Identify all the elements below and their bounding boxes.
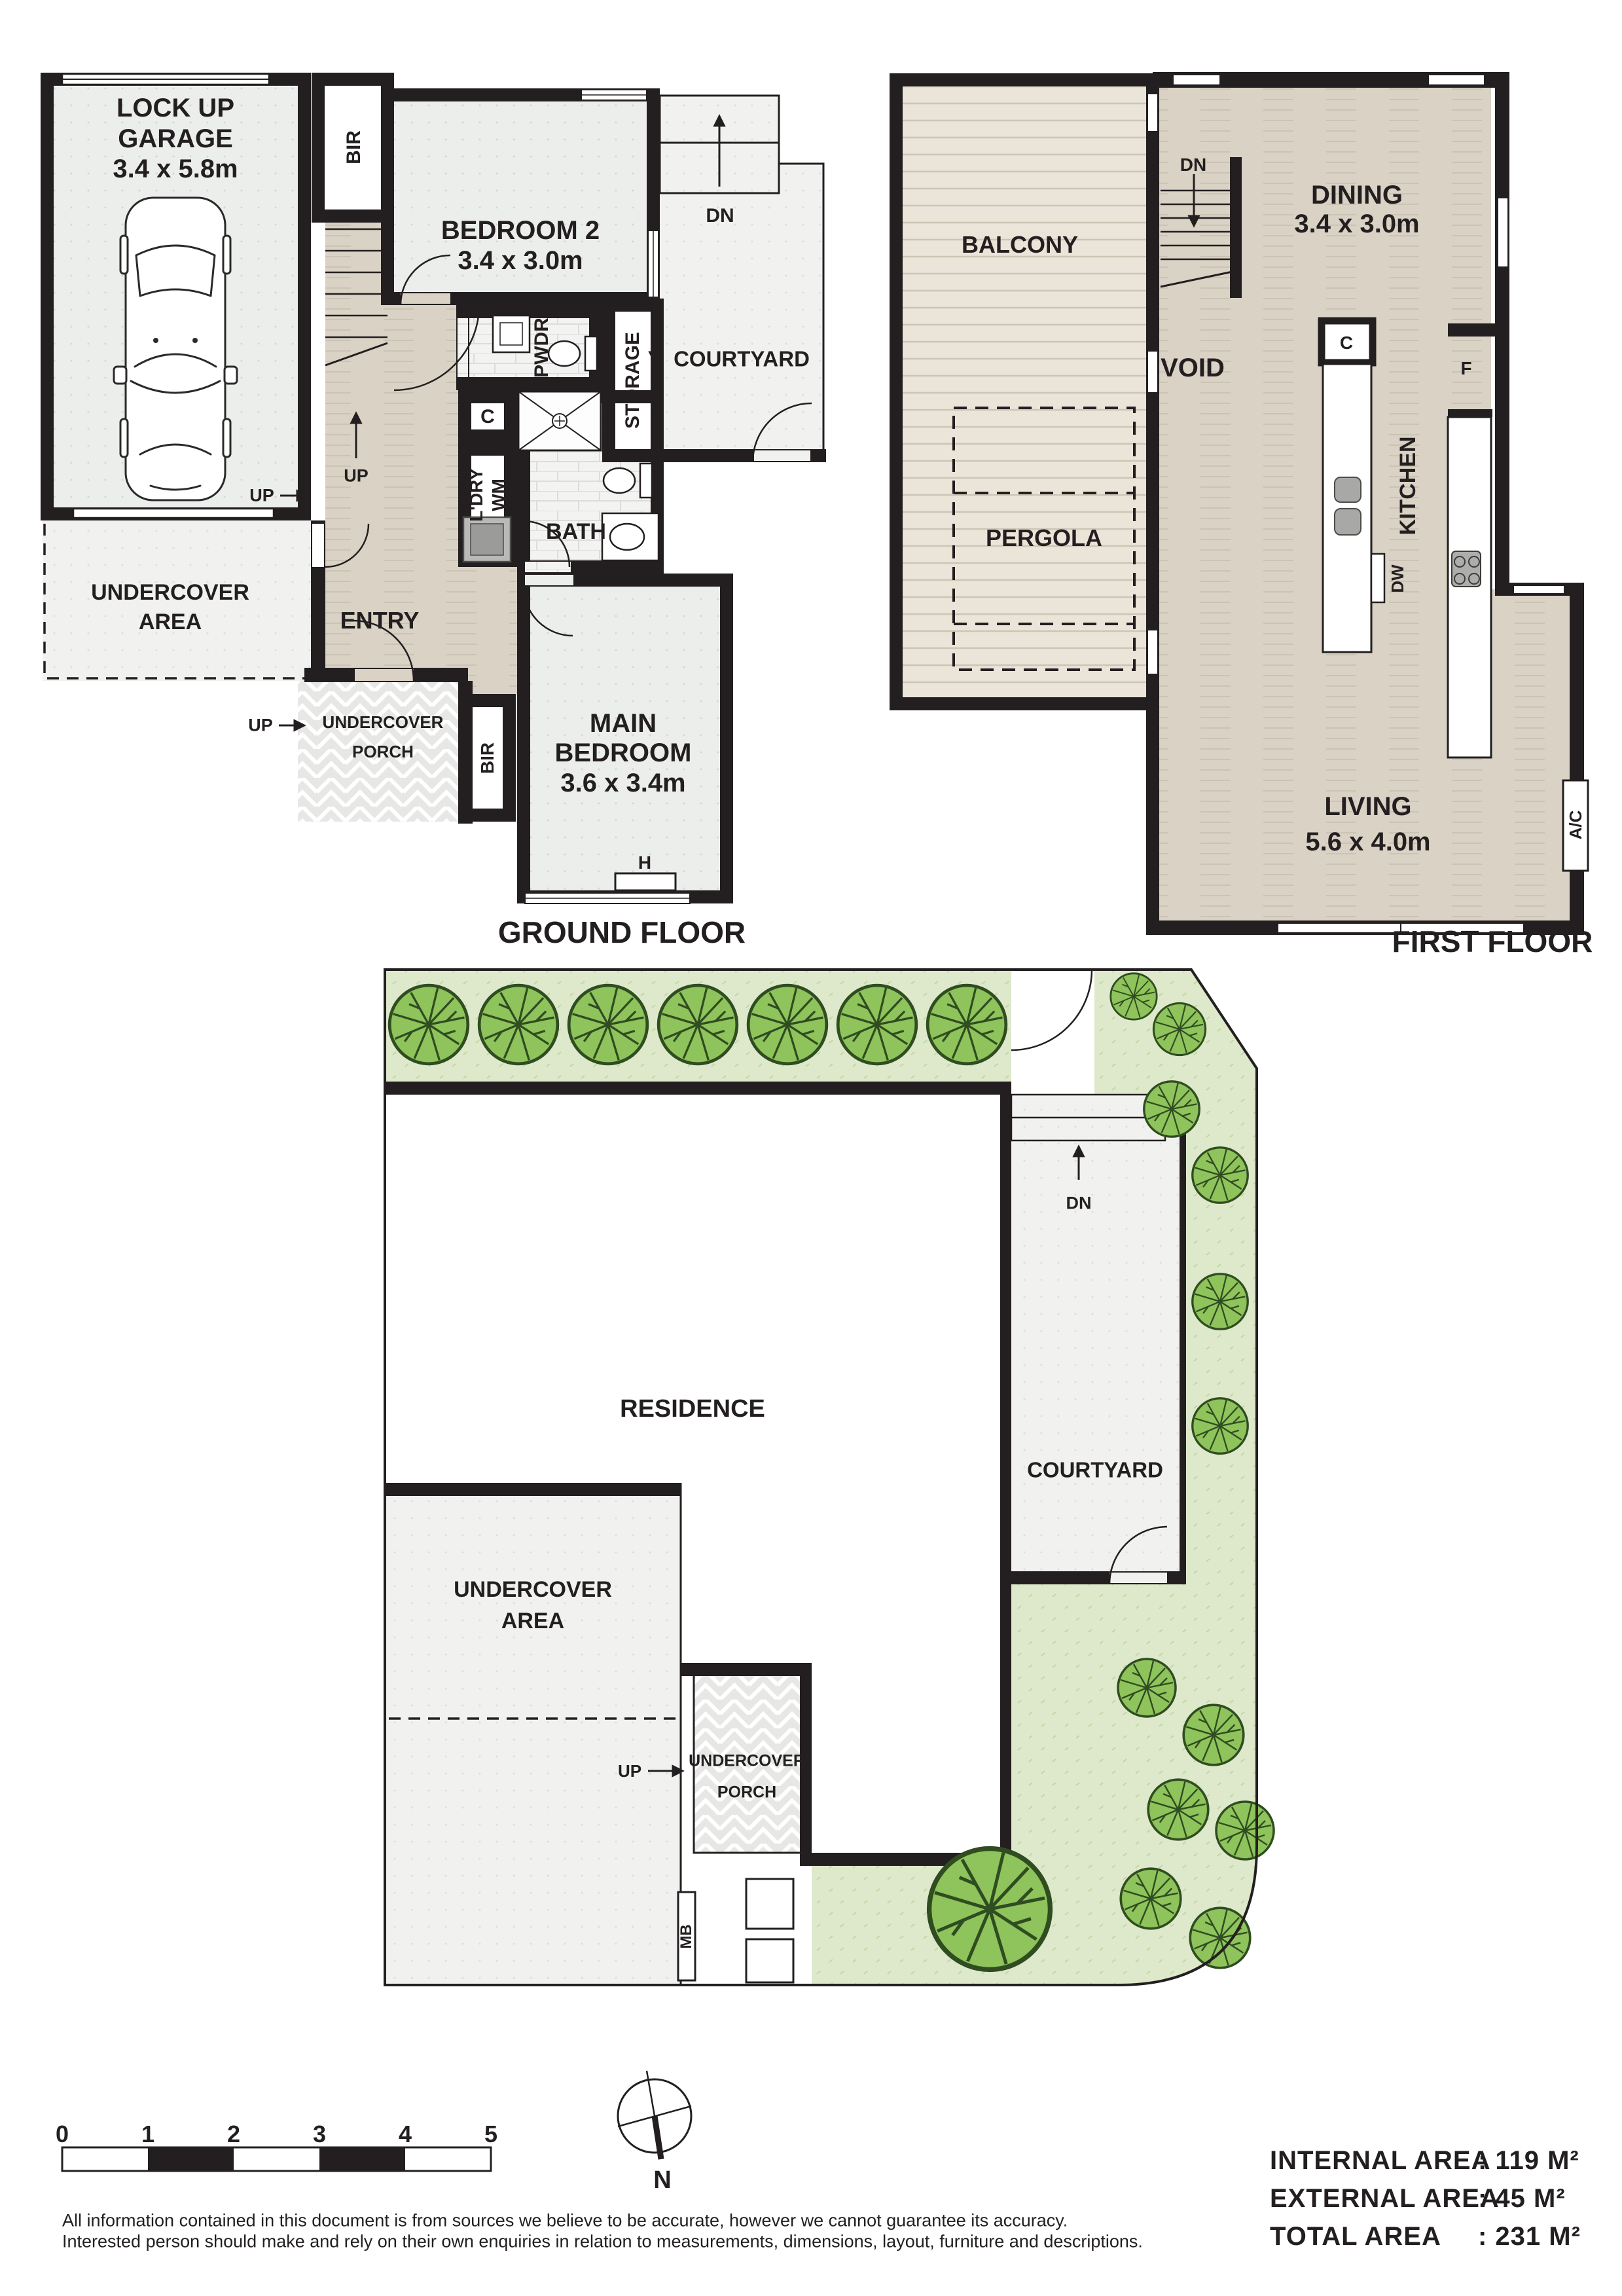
garage-label-line2: GARAGE bbox=[118, 126, 233, 152]
bir2-label: BIR bbox=[478, 742, 497, 774]
kitchen-label: KITCHEN bbox=[1397, 436, 1419, 535]
residence-label: RESIDENCE bbox=[620, 1396, 765, 1421]
garage-label-line1: LOCK UP bbox=[117, 95, 234, 121]
gf-porch-line2: PORCH bbox=[352, 743, 414, 760]
dining-dims: 3.4 x 3.0m bbox=[1294, 211, 1419, 237]
scale-tick-0: 0 bbox=[56, 2123, 69, 2146]
meter-box-label: MB bbox=[679, 1924, 694, 1948]
compass-icon bbox=[618, 2071, 691, 2159]
main-bedroom-line1: MAIN bbox=[590, 710, 657, 737]
scale-tick-2: 2 bbox=[227, 2123, 240, 2146]
balcony-label: BALCONY bbox=[962, 233, 1078, 257]
gf-cupboard-label: C bbox=[480, 407, 495, 427]
wm-label: WM bbox=[490, 479, 508, 511]
total-area-value: : 231 M² bbox=[1478, 2223, 1581, 2250]
heater-label: H bbox=[638, 854, 651, 872]
site-undercover-line2: AREA bbox=[501, 1610, 564, 1632]
car-icon bbox=[114, 198, 237, 500]
site-undercover-line1: UNDERCOVER bbox=[454, 1578, 612, 1601]
internal-area-value: : 119 M² bbox=[1478, 2147, 1579, 2174]
scale-tick-1: 1 bbox=[141, 2123, 154, 2146]
dining-label: DINING bbox=[1311, 182, 1403, 208]
main-bedroom-dims: 3.6 x 3.4m bbox=[560, 770, 685, 796]
ff-cupboard-label: C bbox=[1340, 334, 1353, 352]
site-porch-line2: PORCH bbox=[717, 1785, 776, 1801]
total-area-label: TOTAL AREA bbox=[1270, 2223, 1441, 2250]
entry-label: ENTRY bbox=[340, 609, 420, 632]
scale-tick-3: 3 bbox=[313, 2123, 326, 2146]
bedroom2-dims: 3.4 x 3.0m bbox=[458, 247, 583, 274]
main-bedroom-line2: BEDROOM bbox=[555, 740, 692, 766]
gf-dn-label: DN bbox=[706, 206, 734, 226]
internal-area-label: INTERNAL AREA bbox=[1270, 2147, 1490, 2174]
fridge-label: F bbox=[1460, 359, 1471, 378]
north-label: N bbox=[653, 2168, 671, 2193]
pwdr-label: PWDR bbox=[532, 318, 552, 378]
living-dims: 5.6 x 4.0m bbox=[1305, 829, 1430, 855]
gf-undercover-area-line1: UNDERCOVER bbox=[91, 581, 249, 604]
plan-geometry bbox=[0, 0, 1622, 2296]
scale-bar bbox=[62, 2147, 491, 2171]
site-porch-line1: UNDERCOVER bbox=[689, 1753, 805, 1770]
side-door-up-label: UP bbox=[249, 487, 274, 505]
external-area-label: EXTERNAL AREA bbox=[1270, 2185, 1500, 2212]
gf-courtyard-label: COURTYARD bbox=[674, 348, 810, 370]
bath-label: BATH bbox=[546, 520, 606, 543]
gf-porch-line1: UNDERCOVER bbox=[323, 714, 444, 731]
ac-label: A/C bbox=[1567, 811, 1584, 840]
stairs-up-label: UP bbox=[344, 467, 369, 485]
floorplan-page: LOCK UP GARAGE 3.4 x 5.8m BIR BEDROOM 2 … bbox=[0, 0, 1622, 2296]
void-label: VOID bbox=[1161, 355, 1225, 381]
bir-label: BIR bbox=[344, 130, 364, 164]
pergola-label: PERGOLA bbox=[986, 526, 1102, 550]
porch-up-label: UP bbox=[248, 717, 273, 735]
scale-tick-5: 5 bbox=[484, 2123, 497, 2146]
living-label: LIVING bbox=[1324, 793, 1411, 820]
laundry-label: L'DRY bbox=[467, 468, 486, 522]
ground-floor-title: GROUND FLOOR bbox=[498, 917, 746, 947]
first-floor-plan bbox=[896, 72, 1588, 935]
site-dn-label: DN bbox=[1066, 1195, 1092, 1212]
gf-undercover-area-line2: AREA bbox=[139, 611, 202, 633]
ground-floor-plan bbox=[43, 74, 826, 903]
garage-dims: 3.4 x 5.8m bbox=[113, 156, 238, 182]
site-courtyard-label: COURTYARD bbox=[1027, 1459, 1163, 1481]
dishwasher-label: DW bbox=[1389, 564, 1406, 592]
external-area-value: : 45 M² bbox=[1478, 2185, 1566, 2212]
disclaimer-line2: Interested person should make and rely o… bbox=[62, 2233, 1143, 2251]
ff-dn-label: DN bbox=[1180, 156, 1206, 174]
bedroom2-label: BEDROOM 2 bbox=[441, 217, 600, 244]
storage-label: STORAGE bbox=[623, 332, 643, 429]
first-floor-title: FIRST FLOOR bbox=[1392, 926, 1593, 957]
site-up-label: UP bbox=[618, 1762, 641, 1779]
scale-tick-4: 4 bbox=[399, 2123, 412, 2146]
disclaimer-line1: All information contained in this docume… bbox=[62, 2212, 1068, 2230]
